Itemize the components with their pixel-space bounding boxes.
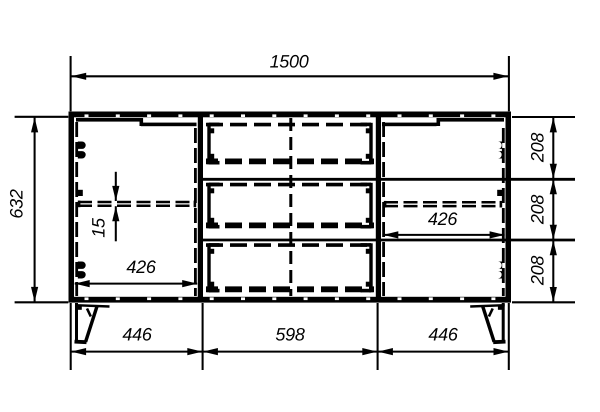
svg-text:598: 598 <box>275 325 304 345</box>
svg-text:446: 446 <box>122 325 152 345</box>
svg-text:208: 208 <box>528 133 548 163</box>
svg-text:208: 208 <box>528 256 548 286</box>
svg-text:1500: 1500 <box>270 52 309 72</box>
svg-text:208: 208 <box>528 195 548 225</box>
svg-text:15: 15 <box>88 217 108 238</box>
svg-text:446: 446 <box>428 325 458 345</box>
svg-text:426: 426 <box>126 257 156 277</box>
svg-text:632: 632 <box>7 189 27 218</box>
svg-text:426: 426 <box>428 209 458 229</box>
